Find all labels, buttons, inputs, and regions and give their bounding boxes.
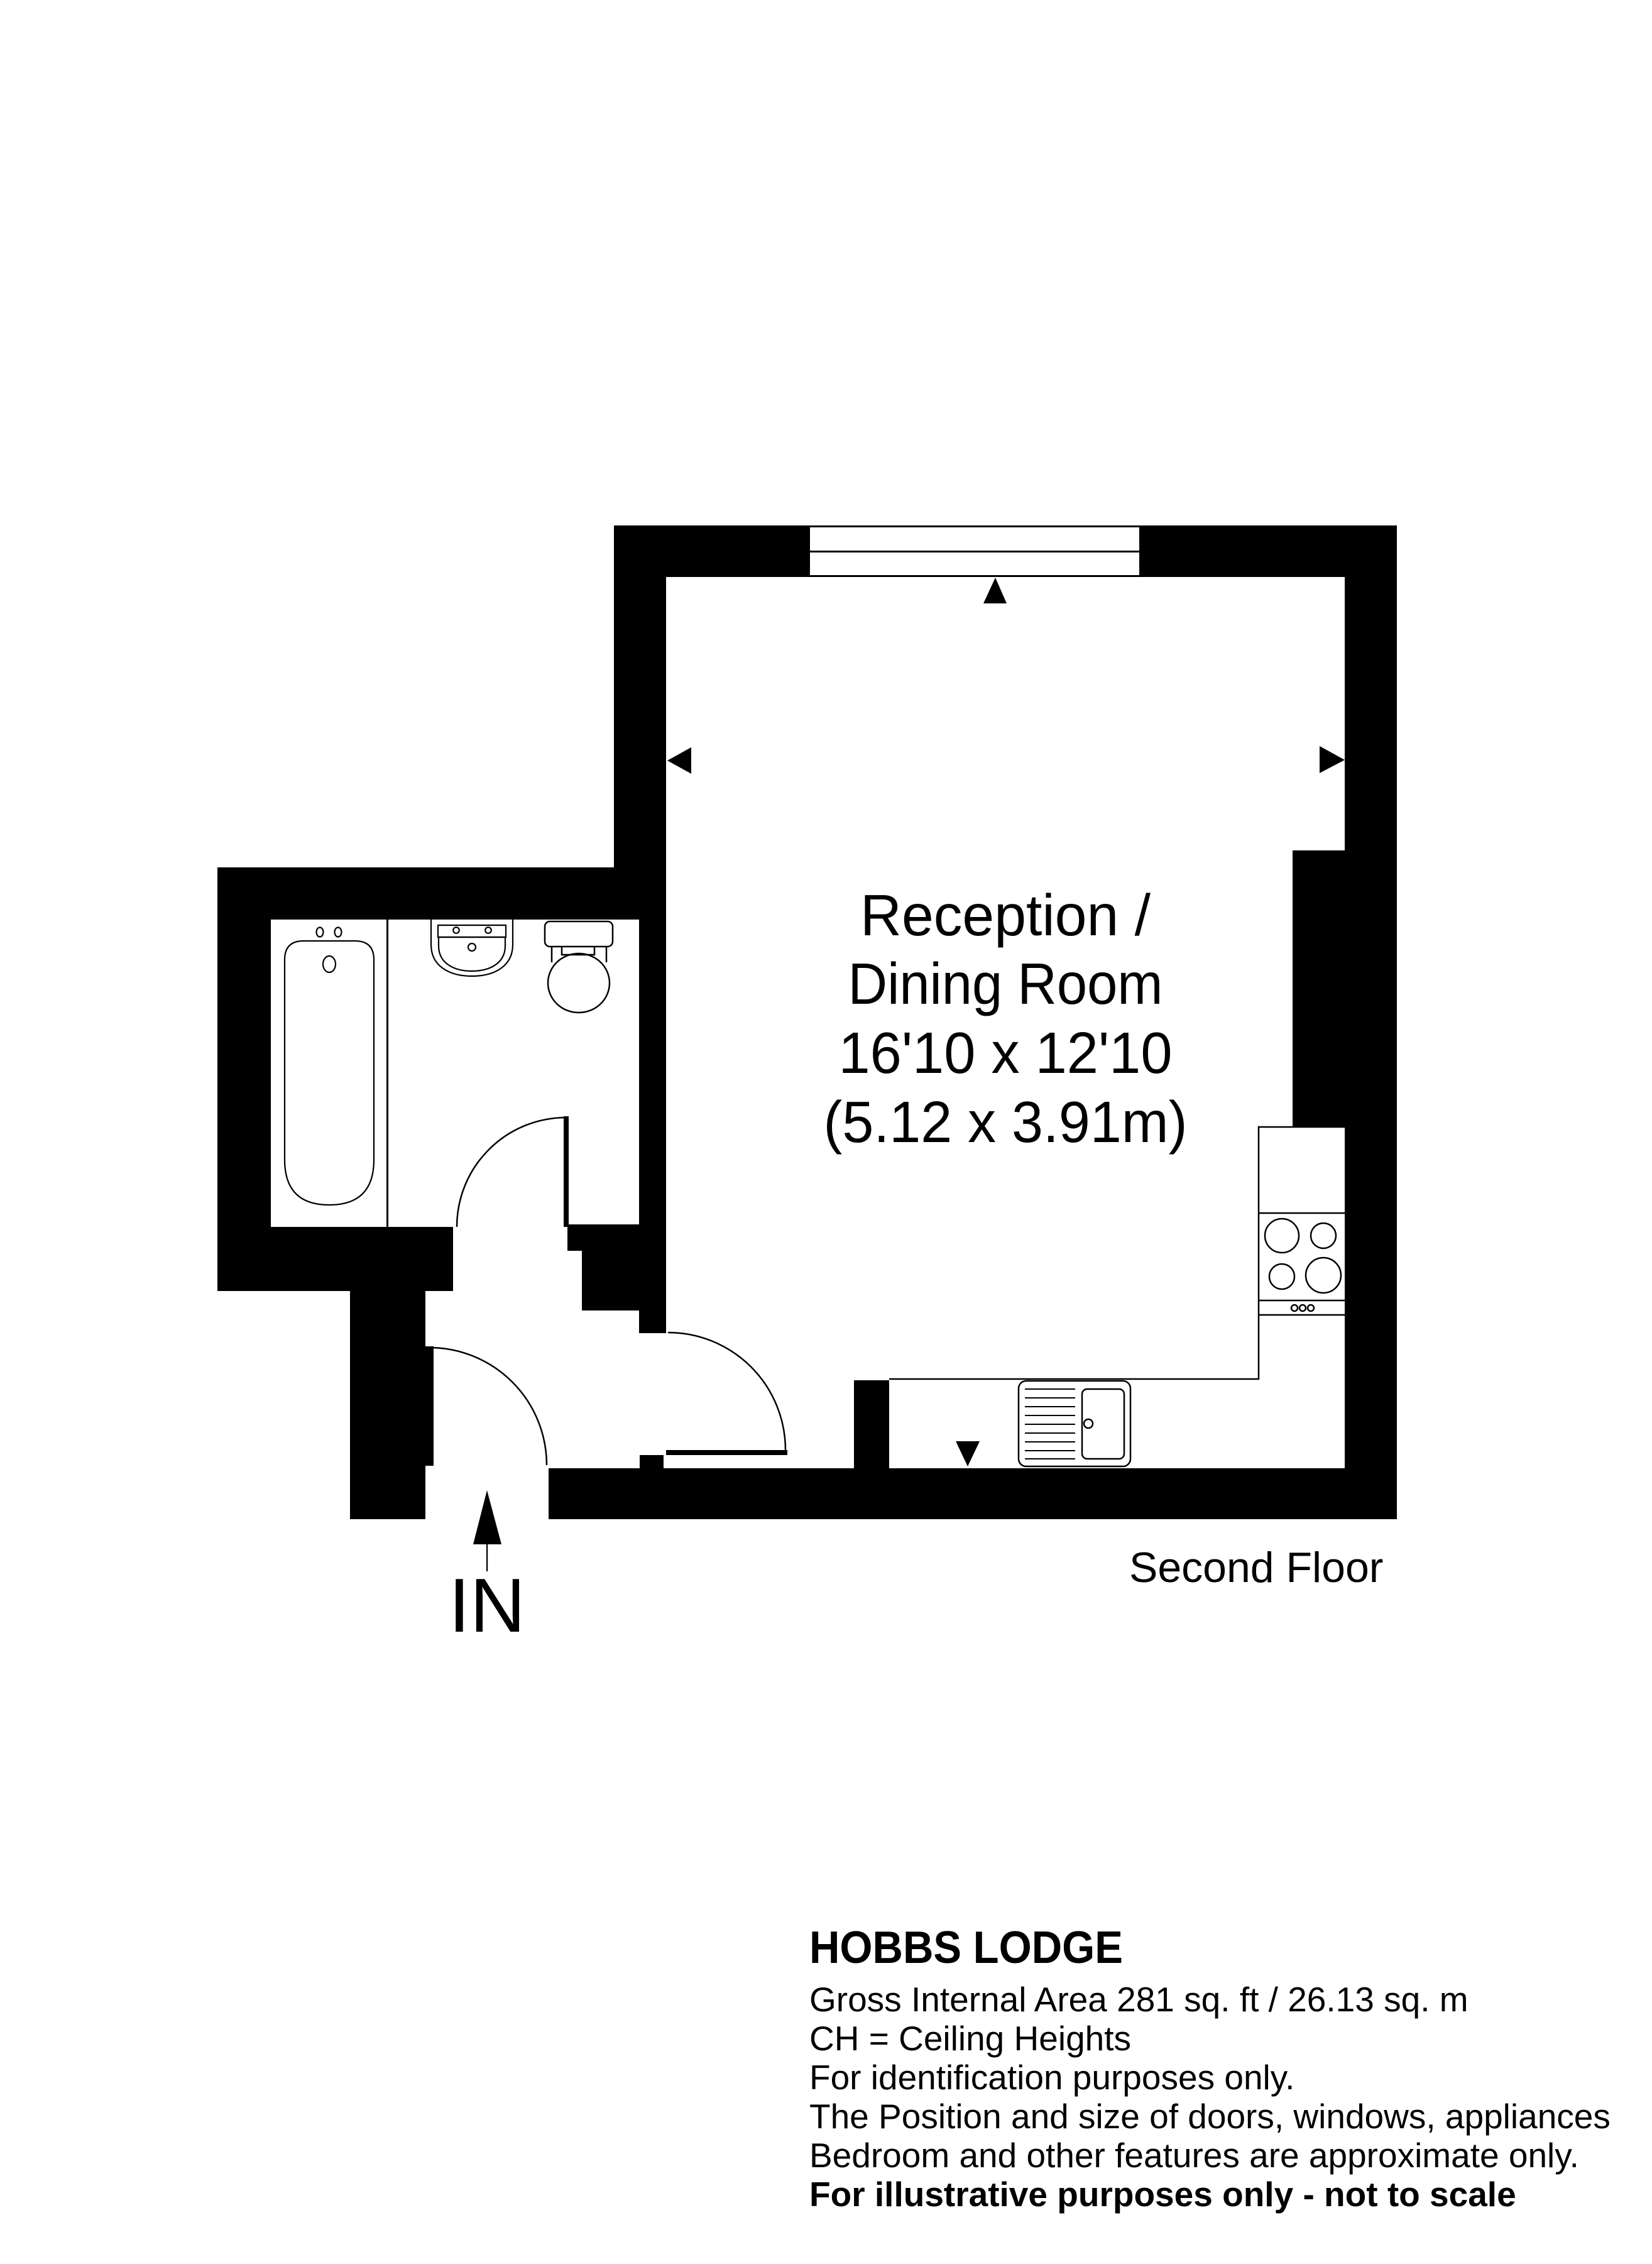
svg-text:CH = Ceiling Heights: CH = Ceiling Heights	[809, 2019, 1131, 2058]
svg-text:Bedroom and other features are: Bedroom and other features are approxima…	[809, 2136, 1579, 2175]
svg-text:(5.12 x 3.91m): (5.12 x 3.91m)	[824, 1089, 1188, 1155]
svg-text:16'10 x 12'10: 16'10 x 12'10	[839, 1020, 1173, 1085]
svg-text:Dining Room: Dining Room	[848, 951, 1163, 1016]
svg-text:Second Floor: Second Floor	[1129, 1544, 1383, 1591]
svg-text:Reception /: Reception /	[860, 882, 1151, 948]
svg-text:The Position and size of doors: The Position and size of doors, windows,…	[809, 2097, 1611, 2136]
svg-text:For identification purposes on: For identification purposes only.	[809, 2058, 1294, 2097]
svg-text:Gross Internal Area 281 sq. ft: Gross Internal Area 281 sq. ft / 26.13 s…	[809, 1980, 1469, 2019]
svg-text:HOBBS LODGE: HOBBS LODGE	[809, 1923, 1123, 1973]
svg-text:For illustrative purposes only: For illustrative purposes only - not to …	[809, 2175, 1516, 2214]
svg-text:IN: IN	[449, 1563, 525, 1648]
